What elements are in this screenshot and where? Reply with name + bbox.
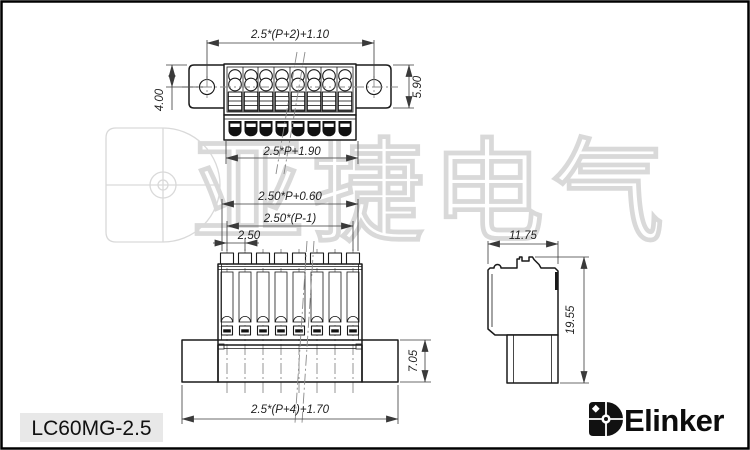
dim-frontview-overall-width: 2.5*(P+4)+1.70 [250,404,330,416]
dim-frontview-pin-span: 2.50*(P-1) [263,213,317,225]
brand-logo-icon [588,401,624,437]
dim-frontview-pin-row-width: 2.50*P+0.60 [257,191,322,203]
technical-drawing: 亚捷电气 [0,0,750,450]
dim-topview-overall-width: 2.5*(P+2)+1.10 [250,29,330,41]
dim-sideview-depth: 11.75 [509,230,538,242]
front-view [182,241,398,423]
dim-topview-flange-height: 5.90 [412,75,424,98]
drawing-page: 亚捷电气 [0,0,750,450]
dim-frontview-pitch: 2.50 [237,230,261,242]
part-number-label: LC60MG-2.5 [31,417,151,440]
side-view [488,257,558,383]
dim-frontview-base-height: 7.05 [408,349,420,372]
dim-topview-body-width: 2.5*P+1.90 [262,146,321,158]
dim-topview-hole-offset: 4.00 [154,88,166,111]
dim-sideview-height: 19.55 [565,305,577,334]
brand-name-text: Elinker [624,403,724,438]
